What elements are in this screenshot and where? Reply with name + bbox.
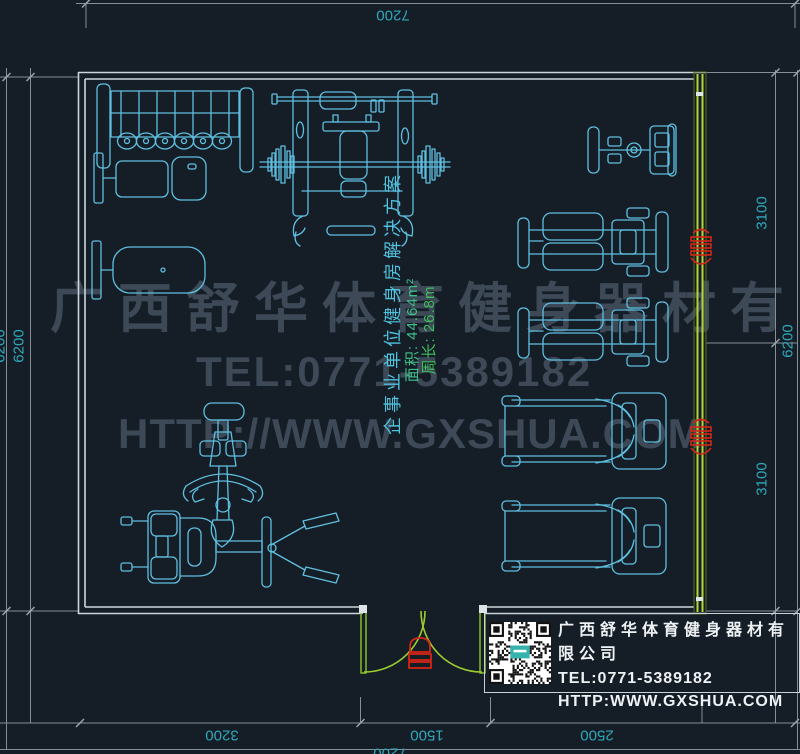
flat-bench xyxy=(94,153,206,203)
info-box: 广西舒华体育健身器材有限公司 TEL:0771-5389182 HTTP:WWW… xyxy=(484,613,800,693)
elliptical-trainer xyxy=(588,124,676,176)
door-hinge-right xyxy=(479,605,487,613)
wall-dash-top xyxy=(696,92,703,96)
strength-machine-upper xyxy=(518,208,668,276)
strength-machine-lower xyxy=(518,298,668,366)
wall-dash-bottom xyxy=(696,597,703,601)
dimension-label-left-outer: 6200 xyxy=(0,329,9,362)
dimension-label-bottom-right: 2500 xyxy=(580,727,613,744)
dimension-label-bottom-total: 7200 xyxy=(373,745,406,754)
dimension-label-bottom-middle: 1500 xyxy=(410,727,443,744)
dimension-label-right-total: 6200 xyxy=(780,324,797,357)
door-hinge-left xyxy=(359,605,367,613)
dimension-label-bottom-left: 3200 xyxy=(205,727,238,744)
leg-press-machine xyxy=(121,511,339,587)
info-tel: TEL:0771-5389182 xyxy=(558,667,799,690)
upright-bike xyxy=(183,403,262,547)
plan-area: 面积: 44.64m² xyxy=(404,225,421,435)
treadmill-lower xyxy=(502,498,666,574)
bench-press-station xyxy=(260,90,450,246)
info-text: 广西舒华体育健身器材有限公司 TEL:0771-5389182 HTTP:WWW… xyxy=(558,619,799,713)
info-company: 广西舒华体育健身器材有限公司 xyxy=(558,619,799,667)
info-url: HTTP:WWW.GXSHUA.COM xyxy=(558,690,799,713)
plan-title: 企事业单位健身房解决方案 xyxy=(383,225,404,435)
dimension-label-right-lower: 3100 xyxy=(754,462,771,495)
dimension-label-left-inner: 6200 xyxy=(11,329,28,362)
plan-annotation: 企事业单位健身房解决方案 面积: 44.64m² 周长: 26.8m xyxy=(383,225,447,435)
cad-floor-plan: 广西舒华体育健身器材有限公司 TEL:0771-5389182 HTTP://W… xyxy=(0,0,800,754)
plan-perimeter: 周长: 26.8m xyxy=(421,225,438,435)
dimension-label-top: 7200 xyxy=(376,7,409,24)
utility-bench xyxy=(92,241,205,299)
right-wall-green xyxy=(694,72,706,614)
dimension-label-right-upper: 3100 xyxy=(754,196,771,229)
qr-code xyxy=(489,618,551,688)
treadmill-upper xyxy=(502,393,666,469)
red-door-marker xyxy=(409,638,431,668)
